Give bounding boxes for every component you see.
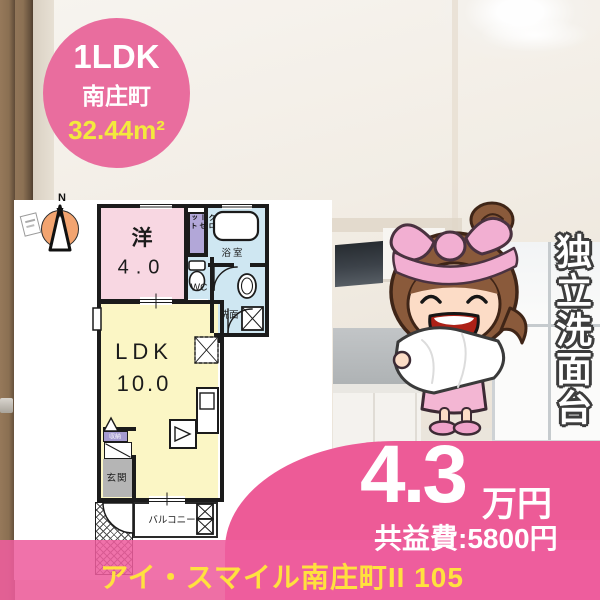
property-name: アイ・スマイル南庄町II 105	[0, 556, 600, 596]
entrance-label: 玄関	[106, 470, 127, 484]
mascot-character	[370, 190, 542, 438]
rent-amount: 4.3	[360, 434, 465, 516]
common-fee: 共益費:5800円	[374, 517, 558, 557]
washroom-label: 洗面	[219, 307, 238, 321]
western-room-size: 4.0	[118, 257, 167, 280]
ceiling-light-glint	[480, 18, 590, 52]
balcony-label: バルコニー	[148, 512, 195, 526]
badge-layout-type: 1LDK	[73, 40, 159, 75]
western-room-label: 洋	[132, 222, 153, 252]
mascot-towel	[395, 328, 504, 393]
mascot-hand	[394, 352, 410, 368]
ldk-label: LDK	[115, 339, 173, 365]
mascot-bow-knot	[435, 232, 465, 260]
mascot-slipper-left	[430, 422, 456, 435]
compass: N	[36, 192, 88, 256]
closet-label: クローゼット	[189, 214, 216, 237]
wc-label: WC	[191, 283, 208, 294]
storage-label: 収納	[109, 432, 121, 441]
feature-vertical-text: 独立洗面台	[545, 233, 597, 428]
mascot-slipper-right	[454, 422, 480, 435]
compass-needle	[38, 202, 82, 254]
door-handle	[0, 398, 13, 413]
badge-floor-area: 32.44m²	[68, 115, 165, 146]
bath-label: 浴室	[221, 245, 244, 259]
badge-area-name: 南庄町	[82, 77, 151, 111]
property-flyer: 洋 4.0 クローゼット 浴室 WC 洗面 LDK 10.0 収納 玄関 バルコ…	[0, 0, 600, 600]
ldk-size: 10.0	[117, 371, 172, 397]
mascot-bow-left	[391, 225, 434, 260]
listing-badge: 1LDK 南庄町 32.44m²	[43, 18, 190, 168]
wooden-door	[0, 0, 15, 600]
